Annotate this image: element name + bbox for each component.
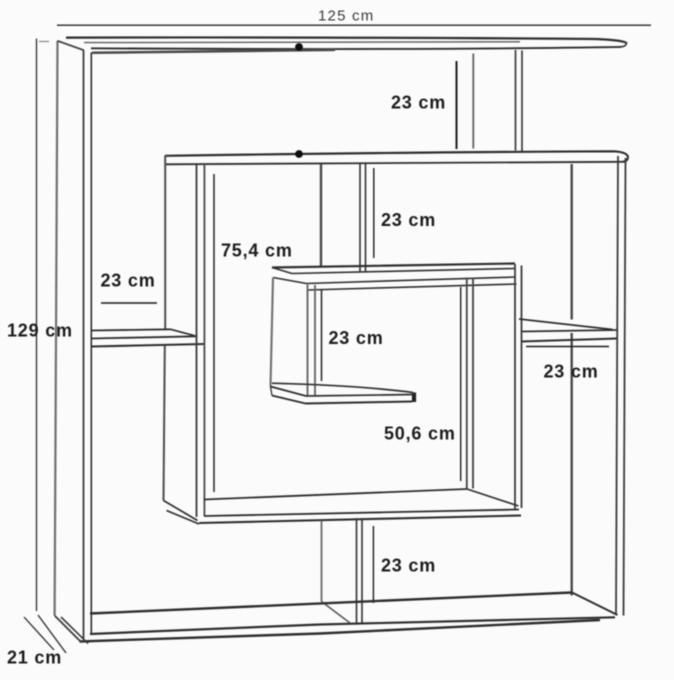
svg-text:125 cm: 125 cm — [318, 8, 374, 25]
svg-text:23 cm: 23 cm — [381, 210, 436, 230]
svg-text:75,4 cm: 75,4 cm — [221, 241, 293, 261]
svg-text:129 cm: 129 cm — [7, 321, 73, 341]
svg-text:50,6 cm: 50,6 cm — [384, 424, 456, 444]
svg-text:23 cm: 23 cm — [329, 328, 384, 348]
svg-text:23 cm: 23 cm — [381, 556, 436, 576]
svg-text:23 cm: 23 cm — [544, 362, 599, 382]
svg-text:23 cm: 23 cm — [391, 93, 446, 113]
svg-text:21 cm: 21 cm — [7, 648, 62, 668]
svg-text:23 cm: 23 cm — [101, 271, 156, 291]
